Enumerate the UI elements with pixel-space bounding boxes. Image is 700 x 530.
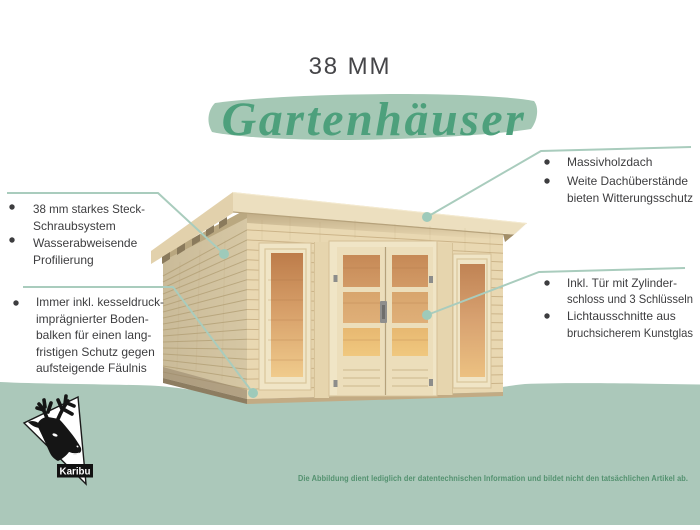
- svg-text:Karibu: Karibu: [60, 466, 91, 478]
- svg-text:schloss und 3 Schlüsseln: schloss und 3 Schlüsseln: [567, 292, 693, 306]
- svg-text:Immer inkl. kesseldruck-: Immer inkl. kesseldruck-: [36, 295, 164, 309]
- svg-text:Weite Dachüberstände: Weite Dachüberstände: [567, 174, 688, 188]
- svg-text:bruchsicherem Kunstglas: bruchsicherem Kunstglas: [567, 326, 693, 340]
- svg-text:38 MM: 38 MM: [309, 53, 392, 80]
- svg-text:balken für einen lang-: balken für einen lang-: [36, 328, 151, 342]
- svg-text:Massivholzdach: Massivholzdach: [567, 155, 652, 169]
- svg-text:Wasserabweisende: Wasserabweisende: [33, 236, 138, 250]
- svg-text:Profilierung: Profilierung: [33, 253, 94, 267]
- svg-text:fristigen Schutz gegen: fristigen Schutz gegen: [36, 345, 155, 359]
- svg-text:Schraubsystem: Schraubsystem: [33, 219, 116, 233]
- svg-text:38 mm starkes Steck-: 38 mm starkes Steck-: [33, 202, 145, 216]
- svg-text:Die Abbildung dient lediglich: Die Abbildung dient lediglich der datent…: [298, 474, 688, 483]
- svg-text:Inkl. Tür mit Zylinder-: Inkl. Tür mit Zylinder-: [567, 276, 677, 290]
- svg-text:aufsteigende Fäulnis: aufsteigende Fäulnis: [36, 361, 147, 375]
- svg-text:imprägnierter Boden-: imprägnierter Boden-: [36, 312, 149, 326]
- svg-text:bieten Witterungsschutz: bieten Witterungsschutz: [567, 191, 693, 205]
- svg-text:Gartenhäuser: Gartenhäuser: [222, 93, 527, 146]
- svg-text:Lichtausschnitte aus: Lichtausschnitte aus: [567, 309, 676, 323]
